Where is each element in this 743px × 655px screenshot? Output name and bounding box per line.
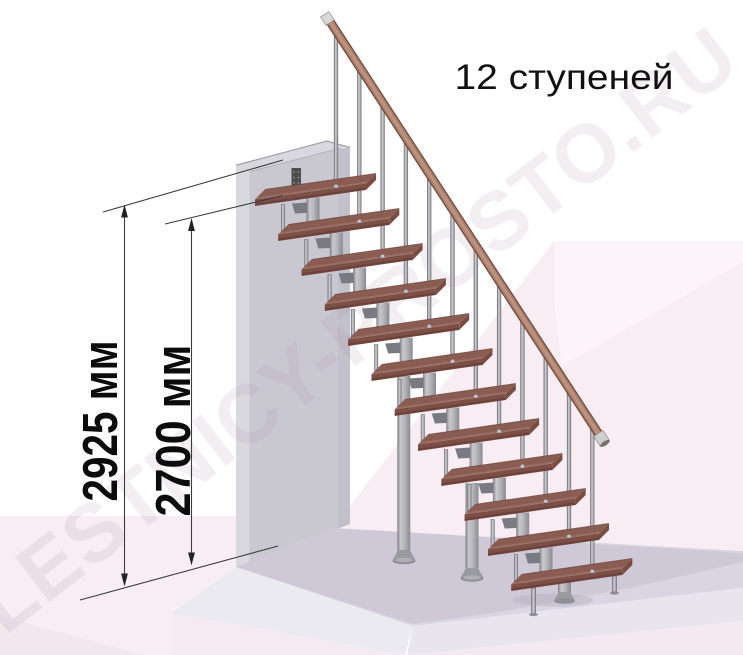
svg-text:2925 мм: 2925 мм bbox=[74, 341, 128, 502]
svg-text:2700 мм: 2700 мм bbox=[147, 345, 201, 517]
svg-text:12 ступеней: 12 ступеней bbox=[455, 58, 674, 97]
